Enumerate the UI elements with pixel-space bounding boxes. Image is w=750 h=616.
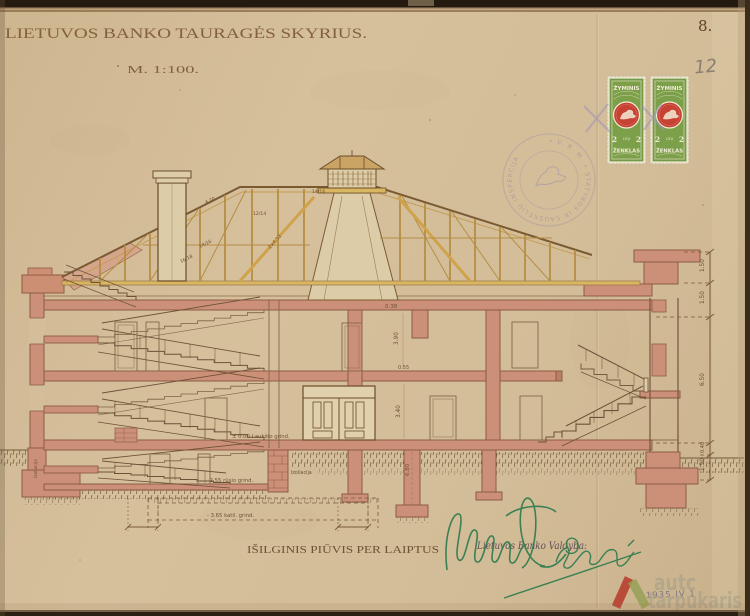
truss-mark: 2×4.30 [267, 234, 283, 251]
drawing-canvas: LIETUVOS BANKO TAURAGĖS SKYRIUS. M. 1:10… [0, 0, 750, 616]
truss-mark: 4.20 [204, 196, 216, 206]
dim-label: 1.50 [700, 458, 706, 471]
main-double-door [303, 386, 375, 440]
dim-label: 6.50 [700, 373, 706, 386]
level-label: ± 0.00 I aukšto grind. [232, 433, 290, 440]
dim-label: 1.50 [700, 259, 706, 272]
level-label: - 3.65 katil. grind. [207, 513, 254, 519]
chimney [153, 171, 191, 281]
wall-stub [412, 310, 428, 338]
dim-label: 0.55 [398, 365, 409, 371]
right-cornice-cap [634, 250, 700, 262]
scale-label: M. 1:100. [127, 64, 199, 76]
dim-label: 0.38 [385, 304, 398, 310]
dim-label: 1.50 [700, 291, 706, 304]
interior-wall [486, 310, 500, 440]
building-section: 1.50 1.50 6.50 0.40 1.50 0.38 3.90 0.55 … [0, 150, 744, 531]
stair-landing [44, 466, 98, 473]
stamp-value-left: 2 [612, 135, 617, 144]
stamp-value-right: 2 [679, 135, 684, 144]
right-cornice-band [584, 284, 652, 296]
stamp-currency: LITŲ [666, 137, 674, 141]
seal-emblem [536, 167, 566, 186]
stamp-currency: LITŲ [623, 137, 631, 141]
truss-bottom-chord [62, 281, 640, 285]
roof-truss [62, 187, 640, 300]
truss-mark: 14/16 [312, 189, 325, 195]
scanned-drawing-sheet: { "document": { "title": "LIETUVOS BANKO… [0, 0, 750, 616]
dim-label: 3.90 [394, 332, 400, 345]
landing-support [115, 428, 137, 442]
stamp-value-left: 2 [655, 135, 660, 144]
truss-mark: 12/14 [253, 211, 266, 217]
drawing-caption: IŠILGINIS PIŪVIS PER LAIPTUS [247, 544, 439, 556]
attic-slab [44, 300, 652, 310]
brick-foundation-wall [268, 448, 288, 492]
level-label: - 2.55 rūsio grind. [206, 478, 253, 484]
stair-landing [44, 336, 98, 343]
dim-label: 6.80 [405, 463, 411, 476]
page-title: LIETUVOS BANKO TAURAGĖS SKYRIUS. [5, 26, 367, 42]
revenue-stamp-pair: ŽYMINIS 2 2 LITŲ ŽENKLAS ŽYMINIS 2 2 LIT… [584, 76, 689, 164]
inspection-seal: • V. R. M. • STATYBOS IR SAUSKELIŲ INSPE… [503, 134, 595, 226]
sheet-number: 8. [698, 17, 712, 35]
watermark-triangle-red [616, 578, 629, 607]
stair-landing [44, 406, 98, 413]
dim-label: 3.40 [396, 405, 402, 418]
left-exterior-wall [30, 290, 44, 448]
newel-post [644, 378, 648, 392]
roof-cupola [318, 150, 386, 193]
stamp-value-right: 2 [636, 135, 641, 144]
left-cornice [22, 275, 64, 293]
title-block: LIETUVOS BANKO TAURAGĖS SKYRIUS. M. 1:10… [5, 26, 367, 76]
insulation-label: Izoliacija [291, 470, 312, 476]
pencil-page-number: 12 [693, 56, 718, 79]
signature-director [446, 498, 566, 570]
second-floor-slab [44, 371, 560, 381]
revenue-stamp: ŽYMINIS 2 2 LITŲ ŽENKLAS [607, 76, 646, 164]
insulation-label: Izoliacija [33, 459, 39, 478]
basement-floor-slab [44, 484, 268, 490]
dim-label: 0.40 [700, 442, 706, 453]
